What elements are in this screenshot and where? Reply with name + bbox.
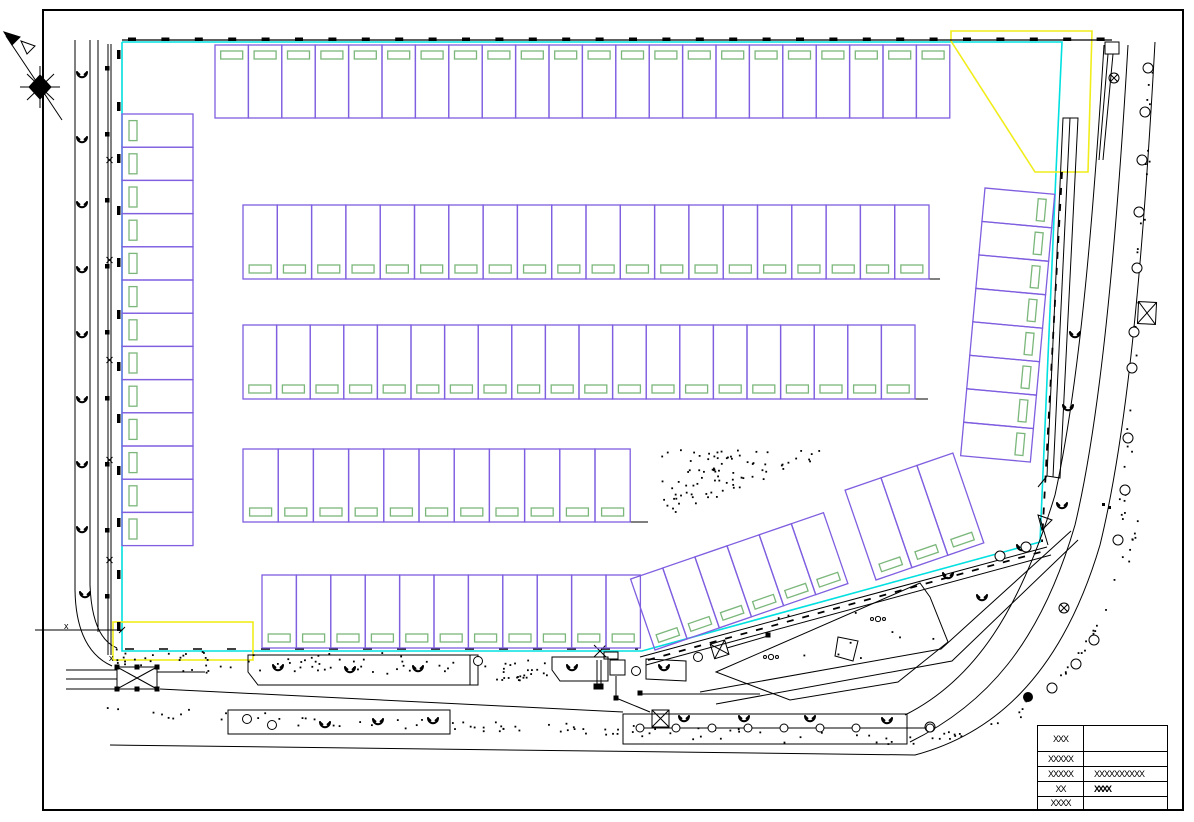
fence-post	[105, 264, 110, 269]
street-tree-icon	[1120, 485, 1130, 495]
wheel-stop-marking	[719, 385, 741, 393]
wheel-stop-marking	[352, 265, 374, 273]
boundary-dash	[195, 38, 203, 42]
street-tree-icon	[694, 653, 703, 662]
boundary-dash	[529, 38, 537, 42]
parking-stall	[349, 45, 382, 118]
wheel-stop-marking	[455, 265, 477, 273]
street-tree-icon	[1071, 659, 1081, 669]
wheel-stop-marking	[386, 265, 408, 273]
wheel-stop-marking	[652, 385, 674, 393]
wheel-stop-marking	[786, 385, 808, 393]
tree-icon	[273, 665, 283, 670]
boundary-dash	[295, 38, 303, 42]
street-tree-icon	[1021, 542, 1031, 552]
boundary-dash	[117, 310, 121, 319]
parking-stall	[346, 205, 380, 279]
wheel-stop-marking	[371, 634, 393, 642]
parking-stall	[449, 205, 483, 279]
wheel-stop-marking	[524, 265, 546, 273]
parking-stall	[517, 205, 551, 279]
landscape-stipple-layer	[107, 72, 1154, 745]
wheel-stop-marking	[450, 385, 472, 393]
parking-row-south-row	[262, 575, 640, 648]
parking-row-southeast-diagonal-b	[845, 453, 984, 580]
boundary-dash	[117, 154, 121, 163]
wheel-stop-marking	[695, 265, 717, 273]
parking-stall	[310, 325, 344, 399]
wheel-stop-marking	[421, 265, 443, 273]
parking-stall	[122, 214, 193, 247]
parking-stall	[384, 449, 419, 522]
boundary-dash	[596, 38, 604, 42]
boundary-dash	[117, 102, 121, 111]
wheel-stop-marking	[555, 51, 577, 59]
wheel-stop-marking	[1027, 299, 1037, 322]
northeast-road-details	[1099, 42, 1119, 160]
boundary-dash	[462, 38, 470, 42]
wheel-stop-marking	[475, 634, 497, 642]
wheel-stop-marking	[588, 51, 610, 59]
boundary-dash	[117, 50, 121, 59]
parking-stall	[489, 449, 524, 522]
boundary-dash	[796, 38, 804, 42]
tree-icon	[567, 665, 577, 670]
wheel-stop-marking	[282, 385, 304, 393]
boundary-dash	[117, 414, 121, 423]
wheel-stop-marking	[764, 265, 786, 273]
parking-stall	[631, 568, 688, 650]
wheel-stop-marking	[1033, 232, 1043, 255]
parking-stall	[122, 280, 193, 313]
wheel-stop-marking	[686, 385, 708, 393]
boundary-dash	[1063, 38, 1071, 42]
title-block-value	[1083, 726, 1167, 751]
wheel-stop-marking	[822, 51, 844, 59]
tree-icon	[659, 665, 669, 670]
parking-stall	[816, 45, 849, 118]
fence-post	[105, 396, 110, 401]
tree-icon	[80, 592, 90, 597]
parking-stall	[243, 325, 277, 399]
wheel-stop-marking	[887, 385, 909, 393]
boundary-dash	[1030, 38, 1038, 42]
boundary-dash	[117, 466, 121, 475]
title-block-label: XX	[1038, 782, 1083, 796]
wheel-stop-marking	[854, 385, 876, 393]
tree-icon	[373, 719, 383, 724]
tree-icon	[77, 202, 87, 207]
tree-symbols-layer	[77, 63, 1153, 732]
wheel-stop-marking	[867, 265, 889, 273]
boundary-dash	[863, 38, 871, 42]
parking-stall	[122, 180, 193, 213]
boundary-dash	[328, 38, 336, 42]
parking-stall	[613, 325, 647, 399]
parking-stall	[296, 575, 330, 648]
wheel-stop-marking	[388, 51, 410, 59]
tree-icon	[882, 718, 892, 723]
wheel-stop-marking	[901, 265, 923, 273]
bollard-icon	[636, 724, 644, 732]
parking-stall	[680, 325, 714, 399]
street-tree-icon	[1137, 155, 1147, 165]
tree-icon	[77, 397, 87, 402]
wheel-stop-marking	[461, 508, 483, 516]
parking-stall	[586, 205, 620, 279]
wheel-stop-marking	[1015, 433, 1025, 456]
wheel-stop-marking	[129, 419, 137, 439]
parking-stall	[483, 205, 517, 279]
wheel-stop-marking	[488, 51, 510, 59]
wheel-stop-marking	[440, 634, 462, 642]
parking-stall	[277, 325, 311, 399]
wheel-stop-marking	[785, 583, 808, 598]
wheel-stop-marking	[543, 634, 565, 642]
wheel-stop-marking	[318, 265, 340, 273]
wheel-stop-marking	[817, 572, 840, 587]
parking-stall	[758, 205, 792, 279]
north-arrow-icon	[4, 32, 62, 120]
parking-stall	[883, 45, 916, 118]
parking-stall	[400, 575, 434, 648]
wheel-stop-marking	[390, 508, 412, 516]
parking-stall	[683, 45, 716, 118]
parking-stall	[454, 449, 489, 522]
boundary-dash	[729, 38, 737, 42]
wheel-stop-marking	[729, 265, 751, 273]
parking-stall	[445, 325, 479, 399]
wheel-stop-marking	[602, 508, 624, 516]
wheel-stop-marking	[129, 187, 137, 207]
parking-stall	[727, 535, 784, 617]
drawing-sheet: xx XXX XXXXX XXXXX XXXXXXXXXX XX XXXX XX…	[0, 0, 1194, 822]
parking-stall	[331, 575, 365, 648]
parking-stall	[649, 45, 682, 118]
aisle-end-lines	[610, 279, 940, 522]
wheel-stop-marking	[626, 265, 648, 273]
parking-stall	[262, 575, 296, 648]
wheel-stop-marking	[417, 385, 439, 393]
wheel-stop-marking	[558, 265, 580, 273]
boundary-dash	[128, 38, 136, 42]
wheel-stop-marking	[496, 508, 518, 516]
wheel-stop-marking	[688, 617, 711, 632]
parking-stall	[579, 325, 613, 399]
boundary-dash	[696, 38, 704, 42]
parking-row-north-row	[215, 45, 950, 118]
circle-cross-icons	[1059, 603, 1069, 613]
parking-stall	[449, 45, 482, 118]
wheel-stop-marking	[720, 606, 743, 621]
parking-row-east-column	[961, 188, 1055, 462]
tree-icon	[1063, 405, 1073, 410]
wheel-stop-marking	[250, 508, 272, 516]
tree-icon	[345, 667, 355, 672]
boundary-dash	[662, 38, 670, 42]
boundary-dash	[562, 38, 570, 42]
parking-stall	[716, 45, 749, 118]
boundary-dash	[896, 38, 904, 42]
boundary-dash	[117, 362, 121, 371]
parking-stall	[434, 575, 468, 648]
wheel-stop-marking	[722, 51, 744, 59]
boundary-dashes-layer	[117, 38, 1105, 632]
west-road	[75, 40, 117, 666]
fence-post	[105, 330, 110, 335]
fence-x-mark	[107, 257, 113, 263]
wheel-stop-marking	[489, 265, 511, 273]
tree-icon	[413, 666, 423, 671]
boundary-dash	[996, 38, 1004, 42]
parking-row-southeast-diagonal-a	[631, 513, 848, 650]
wheel-stop-marking	[551, 385, 573, 393]
fence-x-mark	[107, 157, 113, 163]
tree-icon	[739, 716, 749, 721]
parking-stall	[278, 449, 313, 522]
wheel-stop-marking	[531, 508, 553, 516]
parking-stall	[655, 205, 689, 279]
wheel-stop-marking	[612, 634, 634, 642]
southeast-property-line-dashed	[648, 550, 1048, 660]
parking-stall	[595, 449, 630, 522]
wheel-stop-marking	[753, 594, 776, 609]
bollard-icon	[852, 724, 860, 732]
wheel-stop-marking	[578, 634, 600, 642]
wheel-stop-marking	[355, 508, 377, 516]
fence-post	[105, 198, 110, 203]
wheel-stop-marking	[879, 557, 902, 572]
tree-icon	[77, 527, 87, 532]
parking-stall	[313, 449, 348, 522]
boundary-dash	[117, 622, 121, 631]
title-block-label: XXXX	[1038, 797, 1083, 809]
parking-stall	[663, 557, 720, 639]
title-block-row: XXXXX XXXXXXXXXX	[1038, 766, 1167, 781]
parking-stall	[411, 325, 445, 399]
wheel-stop-marking	[288, 51, 310, 59]
parking-stall	[759, 524, 816, 606]
title-block-row: XX XXXX	[1038, 781, 1167, 796]
wheel-stop-marking	[129, 320, 137, 340]
wheel-stop-marking	[129, 519, 137, 539]
wheel-stop-marking	[922, 51, 944, 59]
wheel-stop-marking	[320, 508, 342, 516]
wheel-stop-marking	[798, 265, 820, 273]
parking-stall	[516, 45, 549, 118]
x-annotation: x	[64, 621, 69, 631]
parking-row-west-column	[122, 114, 193, 546]
wheel-stop-marking	[661, 265, 683, 273]
boundary-dash	[495, 38, 503, 42]
parking-stall	[525, 449, 560, 522]
parking-stall	[312, 205, 346, 279]
parking-stall	[616, 45, 649, 118]
parking-stall	[747, 325, 781, 399]
wheel-stop-marking	[316, 385, 338, 393]
wheel-stop-marking	[283, 265, 305, 273]
wheel-stop-marking	[350, 385, 372, 393]
wheel-stop-marking	[254, 51, 276, 59]
bollard-icon	[926, 724, 934, 732]
wheel-stop-marking	[383, 385, 405, 393]
bollard-icon	[780, 724, 788, 732]
street-tree-icon	[1123, 433, 1133, 443]
parking-stall	[689, 205, 723, 279]
yellow-corner-zone	[951, 31, 1092, 172]
parking-stall	[122, 380, 193, 413]
site-boundary-cyan	[122, 42, 1062, 651]
wheel-stop-marking	[855, 51, 877, 59]
street-tree-icon	[1089, 635, 1099, 645]
parking-stall	[792, 205, 826, 279]
parking-stall	[781, 325, 815, 399]
wheel-stop-marking	[484, 385, 506, 393]
boundary-dash	[429, 38, 437, 42]
wheel-stop-marking	[129, 220, 137, 240]
wheel-stop-marking	[622, 51, 644, 59]
parking-stall	[791, 513, 848, 595]
parking-stall	[814, 325, 848, 399]
parking-stall	[545, 325, 579, 399]
parking-stall	[315, 45, 348, 118]
street-tree-icon	[1127, 363, 1137, 373]
wheel-stop-marking	[1024, 333, 1034, 356]
boundary-dash	[117, 206, 121, 215]
southwest-corner-details	[35, 627, 623, 712]
boundary-dash	[963, 38, 971, 42]
fence-post	[105, 132, 110, 137]
street-tree-icon	[1143, 63, 1153, 73]
wheel-stop-marking	[509, 634, 531, 642]
title-block-value: XXXX	[1083, 782, 1167, 796]
wheel-stop-marking	[518, 385, 540, 393]
parking-stall	[560, 449, 595, 522]
wheel-stop-marking	[521, 51, 543, 59]
parking-stall	[122, 479, 193, 512]
boundary-dash	[395, 38, 403, 42]
street-tree-icon	[632, 667, 641, 676]
parking-stall	[646, 325, 680, 399]
parking-stall	[122, 512, 193, 545]
street-tree-icon	[474, 657, 483, 666]
title-block-row: XXXXX	[1038, 751, 1167, 766]
parking-stall	[850, 45, 883, 118]
wheel-stop-marking	[1036, 199, 1046, 222]
parking-row-mid-row-3	[243, 449, 630, 522]
boundary-dash	[829, 38, 837, 42]
wheel-stop-marking	[655, 51, 677, 59]
fence-x-mark	[107, 557, 113, 563]
boundary-dash	[362, 38, 370, 42]
parking-stall	[122, 247, 193, 280]
title-block-value	[1083, 797, 1167, 809]
tree-icon	[77, 267, 87, 272]
title-block-value	[1083, 752, 1167, 766]
parking-stall	[537, 575, 571, 648]
parking-stall	[382, 45, 415, 118]
yellow-entry-zone	[113, 622, 253, 660]
tree-icon	[679, 716, 689, 721]
parking-row-mid-row-1	[243, 205, 929, 279]
parking-stall	[512, 325, 546, 399]
bollard-icon	[672, 724, 680, 732]
wheel-stop-marking	[249, 385, 271, 393]
tree-icon	[320, 722, 330, 727]
parking-stall	[695, 546, 752, 628]
boundary-dash	[1097, 38, 1105, 42]
wheel-stop-marking	[406, 634, 428, 642]
parking-stall	[415, 45, 448, 118]
x-annotation: x	[109, 653, 114, 663]
wheel-stop-marking	[755, 51, 777, 59]
wheel-stop-marking	[1021, 366, 1031, 389]
title-block-label: XXXXX	[1038, 752, 1083, 766]
parking-stall	[881, 325, 915, 399]
tree-icon	[1070, 332, 1080, 337]
bollard-icon	[744, 724, 752, 732]
guard-booth	[610, 660, 625, 675]
parking-stall	[895, 205, 929, 279]
tree-icon	[77, 332, 87, 337]
wheel-stop-marking	[285, 508, 307, 516]
parking-stall	[723, 205, 757, 279]
parking-stall	[349, 449, 384, 522]
boundary-dash	[117, 258, 121, 267]
wheel-stop-marking	[129, 287, 137, 307]
boundary-dash	[629, 38, 637, 42]
parking-stall	[468, 575, 502, 648]
parking-stall	[248, 45, 281, 118]
wheel-stop-marking	[221, 51, 243, 59]
parking-stall	[783, 45, 816, 118]
parking-stall	[549, 45, 582, 118]
street-tree-icon	[995, 551, 1005, 561]
wheel-stop-marking	[951, 532, 974, 547]
parking-stall	[122, 346, 193, 379]
title-block: XXX XXXXX XXXXX XXXXXXXXXX XX XXXX XXXX	[1037, 725, 1168, 810]
boundary-dash	[161, 38, 169, 42]
fence-x-mark	[107, 357, 113, 363]
boundary-dash	[228, 38, 236, 42]
wheel-stop-marking	[688, 51, 710, 59]
annotation-layer: xx	[64, 621, 114, 663]
wheel-stop-marking	[566, 508, 588, 516]
parking-stall	[282, 45, 315, 118]
south-verge	[623, 714, 907, 744]
title-block-label: XXX	[1038, 726, 1083, 751]
street-tree-icon	[268, 721, 277, 730]
tree-icon	[805, 716, 815, 721]
wheel-stop-marking	[592, 265, 614, 273]
wheel-stop-marking	[1030, 266, 1040, 289]
parking-stall	[478, 325, 512, 399]
parking-stall	[243, 449, 278, 522]
parking-stall	[344, 325, 378, 399]
boundary-dash	[117, 570, 121, 579]
tree-icon	[428, 718, 438, 723]
parking-stall	[572, 575, 606, 648]
wheel-stop-marking	[268, 634, 290, 642]
street-tree-icon	[243, 715, 252, 724]
street-tree-icon	[1140, 107, 1150, 117]
parking-stall	[419, 449, 454, 522]
parking-stall	[826, 205, 860, 279]
tree-icon	[77, 462, 87, 467]
parking-stalls-layer	[122, 45, 1055, 650]
parking-stall	[122, 313, 193, 346]
parking-stall	[377, 325, 411, 399]
